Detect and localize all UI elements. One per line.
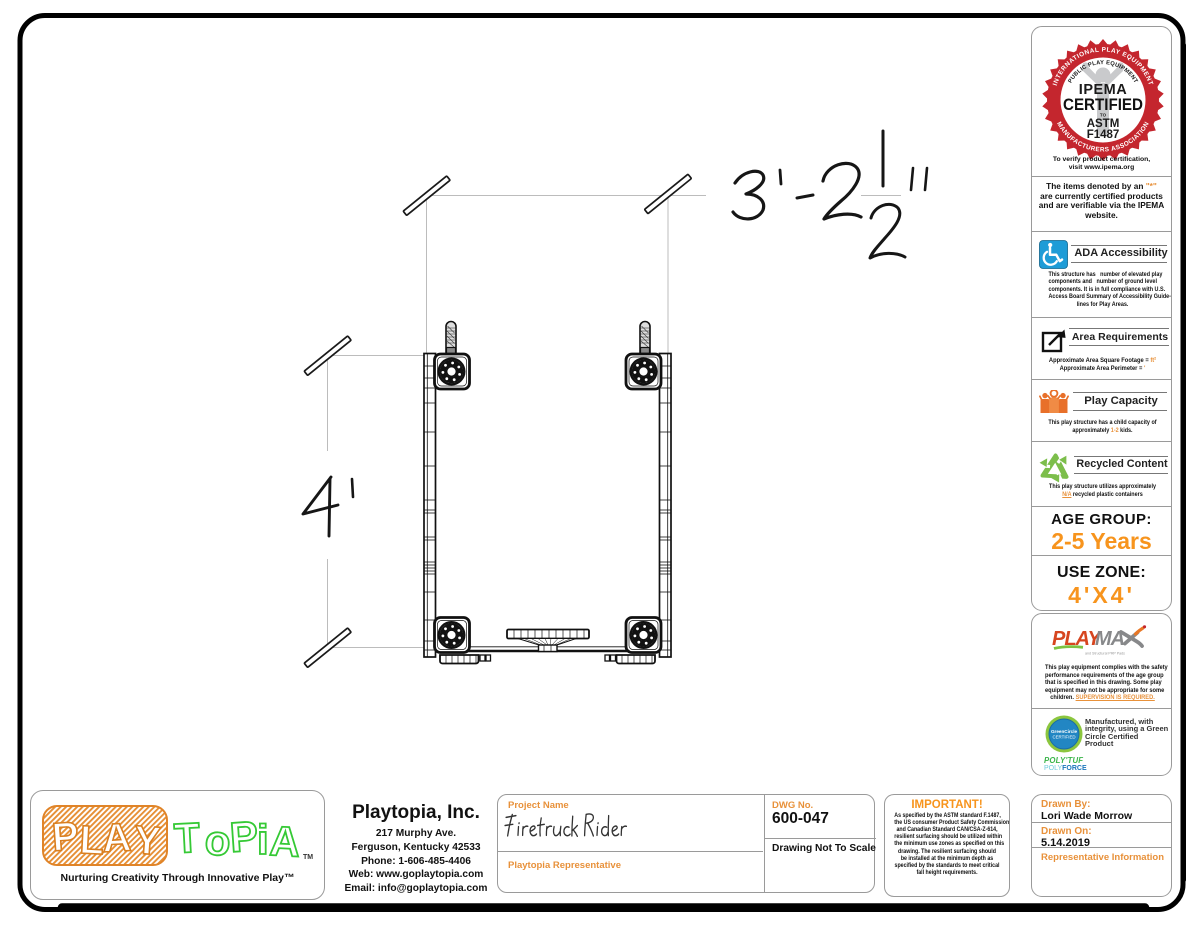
svg-text:P: P	[228, 812, 259, 861]
svg-text:o: o	[203, 816, 232, 865]
svg-text:T: T	[173, 814, 201, 862]
svg-text:A: A	[269, 817, 302, 866]
svg-text:Y: Y	[132, 818, 162, 864]
svg-text:and Structural PRP Pads: and Structural PRP Pads	[1085, 652, 1125, 656]
svg-text:CERTIFIED: CERTIFIED	[1063, 96, 1143, 114]
svg-text:TO: TO	[1100, 112, 1107, 117]
svg-text:F1487: F1487	[1087, 129, 1120, 141]
svg-text:CERTIFIED: CERTIFIED	[1052, 734, 1075, 739]
svg-text:P: P	[51, 814, 81, 860]
svg-text:GreenCircle: GreenCircle	[1051, 729, 1077, 734]
svg-text:A: A	[101, 816, 132, 861]
svg-text:TM: TM	[303, 854, 313, 861]
svg-text:i: i	[257, 816, 269, 863]
